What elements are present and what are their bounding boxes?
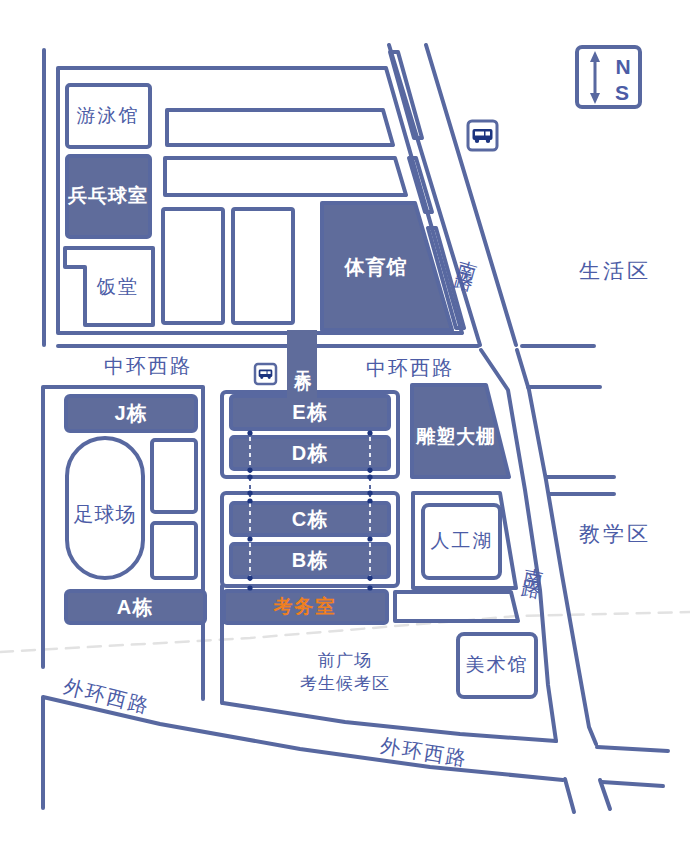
court-1 <box>152 440 196 512</box>
exam-office-label: 考务室 <box>274 596 337 619</box>
building-c-label: C栋 <box>292 507 328 531</box>
football-field-label: 足球场 <box>74 502 137 526</box>
campus-exam-map: 游泳馆 兵乓球室 饭堂 体育馆 南三路 南三路 生活区 教学区 中环西路 中环西… <box>0 0 690 841</box>
nansan-road-tail-west <box>565 779 574 812</box>
canteen-label: 饭堂 <box>97 276 139 299</box>
building-a-label: A栋 <box>117 595 153 619</box>
building-j-label: J栋 <box>114 401 147 425</box>
gymnasium-label: 体育馆 <box>345 255 408 279</box>
zhonghuan-road-label-west: 中环西路 <box>104 354 192 378</box>
art-museum-label: 美术馆 <box>466 654 529 677</box>
bus-icon <box>468 121 497 150</box>
nansan-road-east-edge-lower <box>517 350 596 744</box>
building-d-label: D栋 <box>292 441 328 465</box>
plaza-label-line2: 考生候考区 <box>300 674 390 694</box>
compass-north-label: N <box>615 54 630 79</box>
footbridge <box>287 330 317 400</box>
teaching-area-label: 教学区 <box>579 521 651 546</box>
building-e-label: E栋 <box>292 400 327 424</box>
long-hall-2 <box>165 158 406 195</box>
compass-south-label: S <box>615 80 629 105</box>
natatorium-label: 游泳馆 <box>77 105 140 128</box>
building-b-label: B栋 <box>292 548 328 572</box>
waihuan-road-south-edge-east <box>602 782 663 786</box>
zhonghuan-road-label-east: 中环西路 <box>366 356 454 380</box>
pingpong-room-label: 兵乓球室 <box>68 185 148 208</box>
lake-label: 人工湖 <box>431 530 494 553</box>
long-hall-1 <box>167 110 393 145</box>
unlabeled-hall-1 <box>163 209 223 323</box>
footbridge-label: 天桥 <box>292 357 312 363</box>
court-2 <box>152 523 196 578</box>
living-area-label: 生活区 <box>579 258 651 283</box>
waihuan-road-north-edge-east <box>597 747 668 751</box>
bus-icon <box>255 364 276 384</box>
annex-bar-outline <box>395 592 518 621</box>
sculpture-shed-label: 雕塑大棚 <box>416 426 496 449</box>
unlabeled-hall-2 <box>233 209 293 323</box>
plaza-label-line1: 前广场 <box>318 651 372 671</box>
